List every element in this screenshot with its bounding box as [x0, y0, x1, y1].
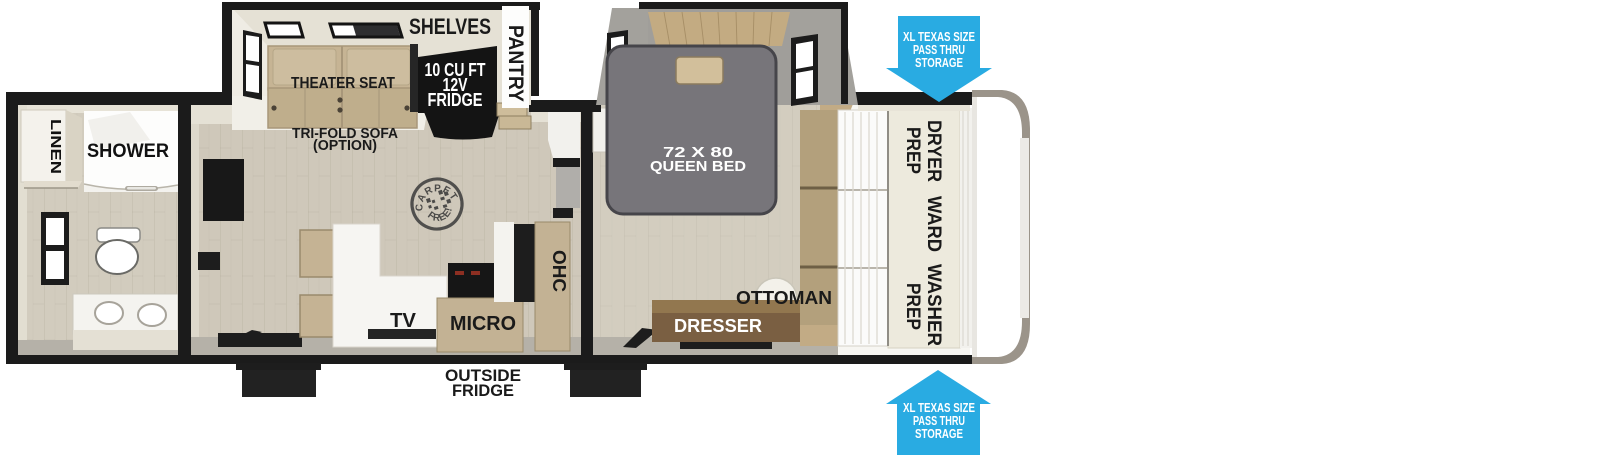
svg-text:PREP: PREP — [902, 127, 923, 174]
svg-text:(OPTION): (OPTION) — [313, 138, 377, 154]
svg-text:FRIDGE: FRIDGE — [428, 90, 483, 110]
svg-text:FRIDGE: FRIDGE — [452, 381, 514, 400]
svg-text:WASHER: WASHER — [923, 264, 944, 346]
svg-text:OTTOMAN: OTTOMAN — [736, 288, 832, 308]
svg-text:XL TEXAS SIZE: XL TEXAS SIZE — [903, 30, 975, 44]
svg-text:LINEN: LINEN — [47, 119, 63, 174]
svg-text:STORAGE: STORAGE — [915, 427, 963, 441]
svg-text:OHC: OHC — [549, 250, 569, 292]
svg-text:SHELVES: SHELVES — [409, 14, 491, 39]
svg-text:PASS THRU: PASS THRU — [913, 414, 965, 428]
svg-text:PREP: PREP — [902, 283, 923, 330]
svg-text:TV: TV — [390, 310, 417, 332]
svg-text:STORAGE: STORAGE — [915, 56, 963, 70]
svg-text:WARD: WARD — [923, 196, 944, 252]
svg-text:DRESSER: DRESSER — [674, 316, 762, 336]
svg-text:MICRO: MICRO — [450, 313, 516, 335]
svg-text:THEATER SEAT: THEATER SEAT — [291, 75, 395, 92]
svg-text:SHOWER: SHOWER — [87, 141, 169, 162]
svg-text:DRYER: DRYER — [923, 120, 944, 182]
svg-text:QUEEN BED: QUEEN BED — [650, 158, 746, 175]
svg-text:PANTRY: PANTRY — [504, 25, 527, 102]
svg-text:PASS THRU: PASS THRU — [913, 43, 965, 57]
svg-text:XL TEXAS SIZE: XL TEXAS SIZE — [903, 401, 975, 415]
